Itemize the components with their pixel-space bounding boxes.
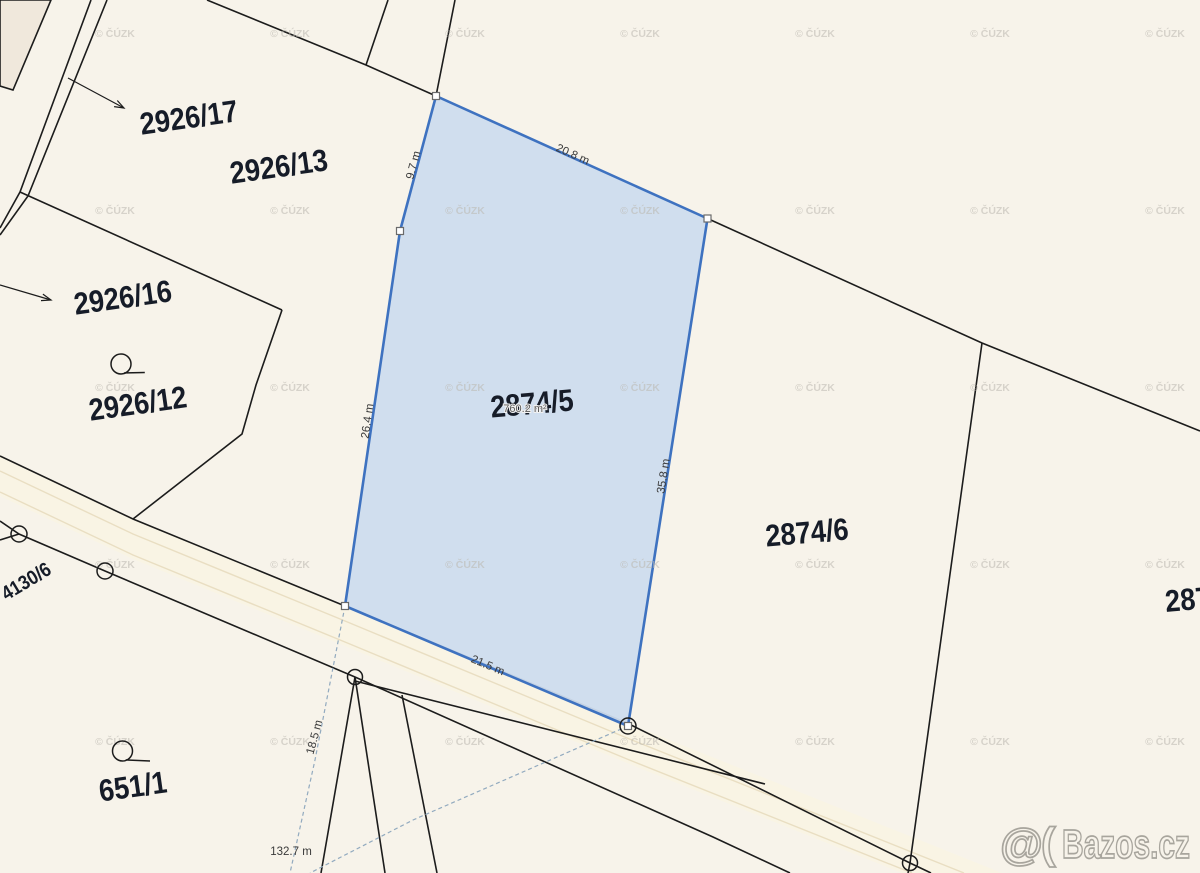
svg-text:© ČÚZK: © ČÚZK	[1145, 381, 1185, 394]
svg-text:@: @	[1000, 820, 1043, 869]
svg-text:© ČÚZK: © ČÚZK	[970, 27, 1010, 40]
svg-text:© ČÚZK: © ČÚZK	[795, 27, 835, 40]
svg-text:© ČÚZK: © ČÚZK	[620, 204, 660, 217]
svg-text:© ČÚZK: © ČÚZK	[95, 735, 135, 748]
svg-text:132.7 m: 132.7 m	[270, 846, 312, 858]
svg-text:© ČÚZK: © ČÚZK	[270, 558, 310, 571]
svg-text:© ČÚZK: © ČÚZK	[1145, 27, 1185, 40]
svg-text:© ČÚZK: © ČÚZK	[795, 204, 835, 217]
svg-text:© ČÚZK: © ČÚZK	[970, 558, 1010, 571]
svg-text:2874/6: 2874/6	[764, 513, 850, 554]
svg-text:© ČÚZK: © ČÚZK	[445, 381, 485, 394]
svg-text:© ČÚZK: © ČÚZK	[270, 27, 310, 40]
svg-text:760.2 m²: 760.2 m²	[503, 403, 547, 415]
svg-text:© ČÚZK: © ČÚZK	[270, 381, 310, 394]
svg-text:© ČÚZK: © ČÚZK	[970, 381, 1010, 394]
svg-text:2874/2: 2874/2	[1164, 578, 1200, 619]
svg-text:© ČÚZK: © ČÚZK	[795, 558, 835, 571]
svg-text:© ČÚZK: © ČÚZK	[445, 204, 485, 217]
svg-text:© ČÚZK: © ČÚZK	[1145, 204, 1185, 217]
svg-text:© ČÚZK: © ČÚZK	[95, 204, 135, 217]
svg-text:© ČÚZK: © ČÚZK	[795, 381, 835, 394]
svg-text:© ČÚZK: © ČÚZK	[270, 735, 310, 748]
svg-text:© ČÚZK: © ČÚZK	[620, 27, 660, 40]
svg-text:© ČÚZK: © ČÚZK	[445, 27, 485, 40]
svg-text:© ČÚZK: © ČÚZK	[445, 735, 485, 748]
svg-text:© ČÚZK: © ČÚZK	[445, 558, 485, 571]
svg-text:© ČÚZK: © ČÚZK	[1145, 558, 1185, 571]
svg-text:© ČÚZK: © ČÚZK	[795, 735, 835, 748]
svg-text:(: (	[1041, 819, 1056, 868]
svg-text:© ČÚZK: © ČÚZK	[270, 204, 310, 217]
svg-text:© ČÚZK: © ČÚZK	[970, 204, 1010, 217]
svg-text:© ČÚZK: © ČÚZK	[1145, 735, 1185, 748]
svg-text:© ČÚZK: © ČÚZK	[620, 381, 660, 394]
svg-text:© ČÚZK: © ČÚZK	[95, 27, 135, 40]
svg-text:Bazos.cz: Bazos.cz	[1062, 821, 1190, 867]
svg-text:© ČÚZK: © ČÚZK	[970, 735, 1010, 748]
svg-text:© ČÚZK: © ČÚZK	[620, 735, 660, 748]
svg-text:© ČÚZK: © ČÚZK	[620, 558, 660, 571]
